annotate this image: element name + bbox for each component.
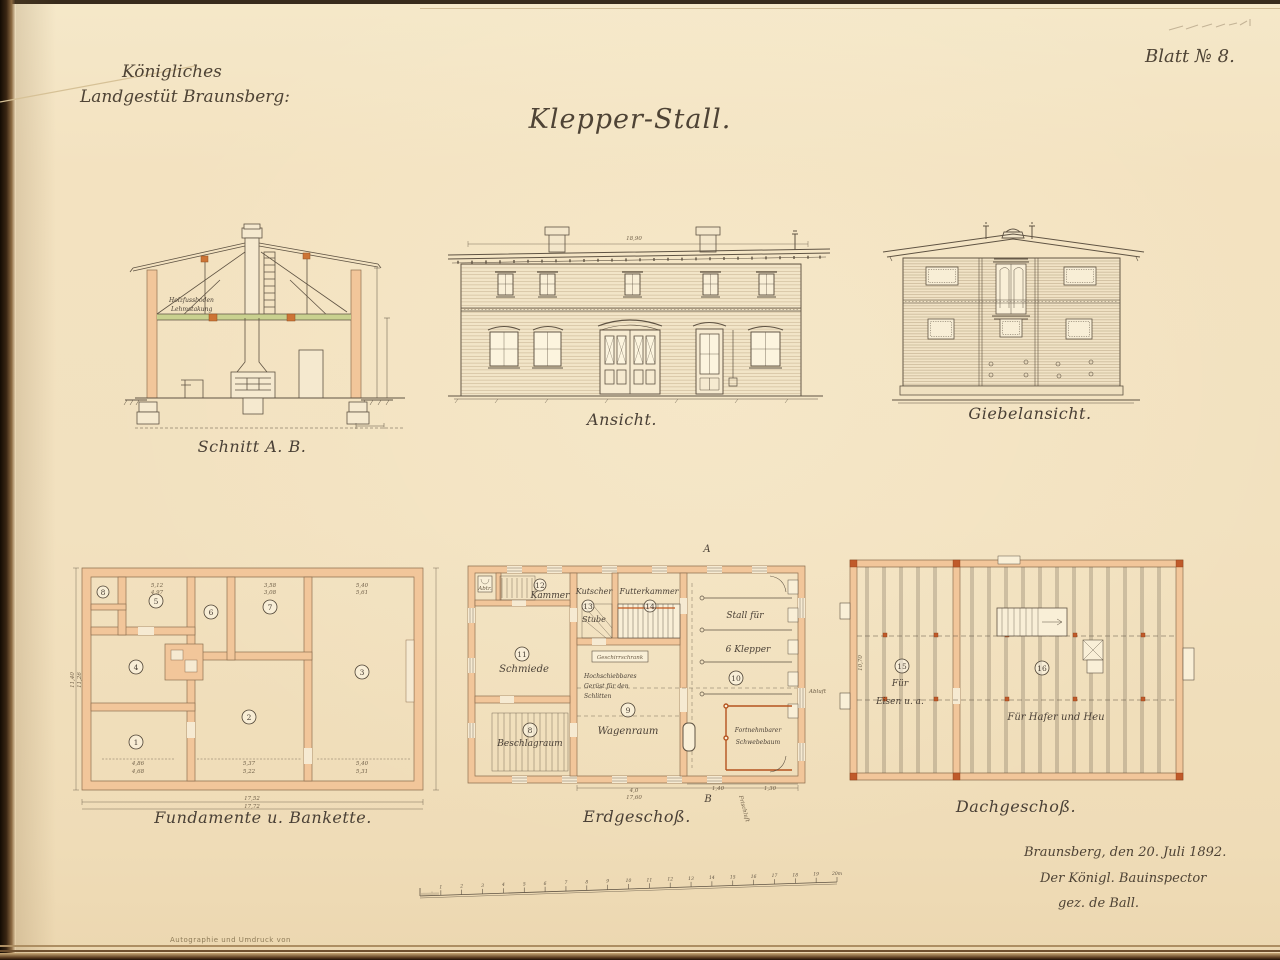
attic-caption: Dachgeschoß. [955,797,1076,816]
svg-text:11: 11 [646,877,652,883]
elevation-caption: Ansicht. [585,410,657,429]
svg-text:16: 16 [1037,664,1047,673]
svg-text:3,08: 3,08 [264,590,277,596]
svg-text:Stube: Stube [582,615,606,624]
svg-text:Für: Für [891,679,909,689]
svg-text:Wagenraum: Wagenraum [598,726,659,737]
gable-elevation-drawing: Giebelansicht. [878,212,1153,427]
svg-text:Schlitten: Schlitten [584,693,612,700]
gable-caption: Giebelansicht. [968,404,1091,423]
svg-text:7: 7 [565,880,568,886]
foundation-dims: 4,86 4,68 5,37 5,22 5,40 5,31 5,12 4,97 … [70,583,369,810]
svg-text:2: 2 [247,713,252,722]
svg-text:11,26: 11,26 [77,672,83,688]
svg-text:3: 3 [360,668,365,677]
section-label-clay: Lehmstakung [170,306,213,313]
ground-floor-caption: Erdgeschoß. [582,807,691,826]
page-fold-shadow [16,0,56,960]
svg-text:4: 4 [134,663,139,672]
section-caption: Schnitt A. B. [198,437,307,456]
svg-text:Hochschiebbares: Hochschiebbares [583,673,637,680]
elevation-width-dim: 18,90 [626,236,642,242]
signature-name: gez. de Ball. [1058,896,1139,911]
svg-text:15: 15 [730,875,736,881]
svg-text:5,61: 5,61 [356,590,368,596]
svg-text:Stall für: Stall für [726,611,764,621]
section-label-floor: Holzfussboden [168,297,214,304]
svg-text:Frischluft: Frischluft [737,794,750,824]
svg-text:6 Klepper: 6 Klepper [726,645,771,655]
svg-text:Abtr.: Abtr. [477,586,492,592]
svg-text:14: 14 [709,875,715,881]
svg-text:15: 15 [897,662,907,671]
svg-text:5: 5 [154,597,159,606]
header-institution-line2: Landgestüt Braunsberg: [80,87,290,107]
svg-text:11,40: 11,40 [70,672,76,688]
svg-text:6: 6 [544,881,547,887]
svg-text:11: 11 [517,650,527,659]
svg-text:8: 8 [528,726,533,735]
paper-top-edge-line [420,8,1280,9]
svg-text:4,0: 4,0 [629,788,639,794]
svg-text:1: 1 [134,738,139,747]
svg-text:17: 17 [772,873,778,879]
svg-text:3,58: 3,58 [264,583,277,589]
svg-text:5: 5 [523,882,526,888]
svg-text:2: 2 [459,884,463,890]
attic-plan-drawing: 15 Für Eisen u. a. 16 Für Hafer und Heu … [838,548,1213,823]
svg-text:14: 14 [645,602,655,611]
svg-text:13: 13 [583,602,593,611]
svg-text:4: 4 [501,882,505,888]
printer-imprint: Autographie und Umdruck von [170,936,291,944]
svg-text:Gerüst für den: Gerüst für den [584,683,629,690]
svg-text:5,40: 5,40 [356,583,369,589]
svg-text:10,70: 10,70 [858,655,864,671]
svg-text:9: 9 [626,706,631,715]
svg-text:Abluft: Abluft [808,689,827,695]
page-title: Klepper-Stall. [500,104,760,135]
foundation-caption: Fundamente u. Bankette. [153,808,372,827]
svg-text:3: 3 [481,883,484,889]
svg-text:20m: 20m [831,871,842,877]
section-drawing: Holzfussboden Lehmstakung Schnitt A. B. [125,222,415,467]
svg-text:Beschlagraum: Beschlagraum [496,739,562,749]
photo-bottom-edge [0,953,1280,960]
pencil-annotation [1165,16,1275,40]
svg-text:Schwebebaum: Schwebebaum [736,739,781,746]
svg-text:10: 10 [626,878,632,884]
header-institution-line1: Königliches [122,62,222,82]
scale-bar-ticks: 1234567891011121314151617181920m [439,871,842,895]
svg-text:5,22: 5,22 [243,769,256,775]
svg-text:5,12: 5,12 [151,583,164,589]
svg-text:16: 16 [751,874,757,880]
signature-office: Der Königl. Bauinspector [1040,871,1206,886]
photo-top-edge [0,0,1280,4]
svg-text:Für Hafer und Heu: Für Hafer und Heu [1006,712,1104,723]
section-mark-a: A [702,544,710,555]
svg-text:8: 8 [585,879,588,885]
svg-text:19: 19 [813,872,819,878]
scale-bar: 1234567891011121314151617181920m [405,866,850,911]
svg-text:5,37: 5,37 [243,761,256,767]
svg-text:4,97: 4,97 [150,590,164,596]
section-mark-b: B [703,794,711,805]
svg-text:7: 7 [268,603,273,612]
svg-text:6: 6 [209,608,214,617]
svg-text:1,40: 1,40 [712,786,725,792]
svg-text:4,86: 4,86 [131,761,145,767]
svg-text:5,40: 5,40 [356,761,369,767]
svg-text:Eisen u. a.: Eisen u. a. [875,697,924,707]
svg-text:5,31: 5,31 [356,769,368,775]
svg-text:1,30: 1,30 [764,786,777,792]
page-bottom-line1 [0,945,1280,947]
svg-text:Kutscher: Kutscher [575,587,614,596]
svg-text:Fortnehmbarer: Fortnehmbarer [734,727,783,734]
svg-text:Kammer: Kammer [530,591,570,601]
svg-text:Futterkammer: Futterkammer [618,587,679,596]
svg-text:18: 18 [792,872,798,878]
svg-text:13: 13 [688,876,694,882]
front-elevation-drawing: 18,90 Ansicht. [438,222,838,447]
svg-text:17,60: 17,60 [626,795,642,801]
svg-text:17,52: 17,52 [244,796,260,802]
svg-text:Schmiede: Schmiede [499,664,549,675]
sheet-number: Blatt № 8. [1145,46,1235,67]
book-binding-edge [0,0,16,960]
foundation-plan-drawing: 1 2 3 4 5 6 7 8 4,86 4,68 5,37 5,22 5,40… [72,552,452,837]
ground-floor-plan-drawing: Abtr. 12 Kammer Kutscher 13 Stube Futter… [452,538,837,838]
page-bottom-line2 [0,950,1280,952]
svg-text:1: 1 [439,884,442,890]
signature-place-date: Braunsberg, den 20. Juli 1892. [1024,845,1226,860]
svg-text:9: 9 [606,879,609,885]
svg-text:12: 12 [535,581,545,590]
attic-labels: 15 Für Eisen u. a. 16 Für Hafer und Heu … [858,655,1105,723]
svg-text:8: 8 [101,588,106,597]
svg-text:Geschirrschrank: Geschirrschrank [597,655,644,661]
svg-text:4,68: 4,68 [131,769,145,775]
svg-text:10: 10 [731,674,741,683]
svg-text:12: 12 [667,877,673,883]
